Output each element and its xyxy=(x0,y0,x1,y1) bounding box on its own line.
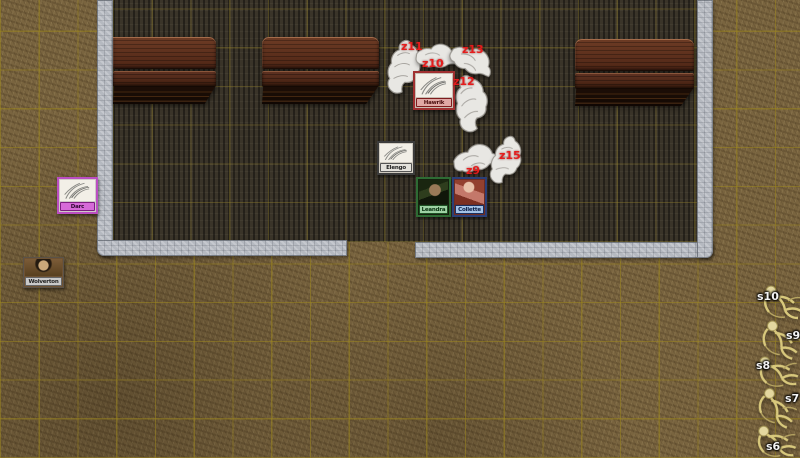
wolf-label: z10 xyxy=(422,57,444,70)
wall-left xyxy=(97,0,113,256)
token-portrait xyxy=(416,74,452,97)
token-label: Leandra xyxy=(419,205,448,214)
token-label: Elengo xyxy=(380,163,412,172)
wall-bottom-right xyxy=(415,242,713,258)
skeleton-label: s7 xyxy=(785,392,799,405)
token-label: Collette xyxy=(455,205,484,214)
wolf-label: z13 xyxy=(462,43,484,56)
token-portrait xyxy=(455,180,484,204)
token-portrait xyxy=(60,180,95,201)
token-portrait xyxy=(25,259,62,276)
wolf-label: z15 xyxy=(499,149,521,162)
table-2-mid xyxy=(262,71,379,87)
table-2-base xyxy=(262,87,379,104)
sketch-portrait-icon xyxy=(60,180,95,201)
table-1-mid xyxy=(113,71,216,87)
battle-map: z11 z10 z13 z12 z9 z15 Hawrik Elengo Lea… xyxy=(0,0,800,458)
sketch-portrait-icon xyxy=(416,74,452,97)
token-collette[interactable]: Collette xyxy=(452,177,487,217)
wolf-label: z12 xyxy=(453,75,475,88)
token-hawrik[interactable]: Hawrik xyxy=(413,71,455,110)
token-portrait xyxy=(380,144,412,162)
skeleton-label: s6 xyxy=(766,440,780,453)
skeleton-label: s10 xyxy=(757,290,779,303)
table-3 xyxy=(575,39,694,106)
token-label: Darc xyxy=(60,202,95,211)
table-3-base xyxy=(575,89,694,106)
table-2 xyxy=(262,37,379,104)
table-3-top xyxy=(575,39,694,71)
token-label: Wolverton xyxy=(25,277,62,286)
sketch-portrait-icon xyxy=(380,144,412,162)
token-wolverton[interactable]: Wolverton xyxy=(23,257,64,288)
token-portrait xyxy=(419,180,448,204)
skeleton-label: s8 xyxy=(756,359,770,372)
token-darc[interactable]: Darc xyxy=(57,177,98,214)
wolf-token-z15[interactable] xyxy=(484,131,528,195)
table-2-top xyxy=(262,37,379,69)
token-label: Hawrik xyxy=(416,98,452,107)
skeleton-label: s9 xyxy=(786,329,800,342)
table-1-top xyxy=(113,37,216,69)
table-1-base xyxy=(113,87,216,104)
table-3-mid xyxy=(575,73,694,89)
wall-bottom-left xyxy=(97,240,347,256)
token-elengo[interactable]: Elengo xyxy=(377,141,415,175)
wall-right xyxy=(697,0,713,258)
token-leandra[interactable]: Leandra xyxy=(416,177,451,217)
wolf-label: z9 xyxy=(466,164,480,177)
wolf-label: z11 xyxy=(401,40,423,53)
table-1 xyxy=(113,37,216,104)
